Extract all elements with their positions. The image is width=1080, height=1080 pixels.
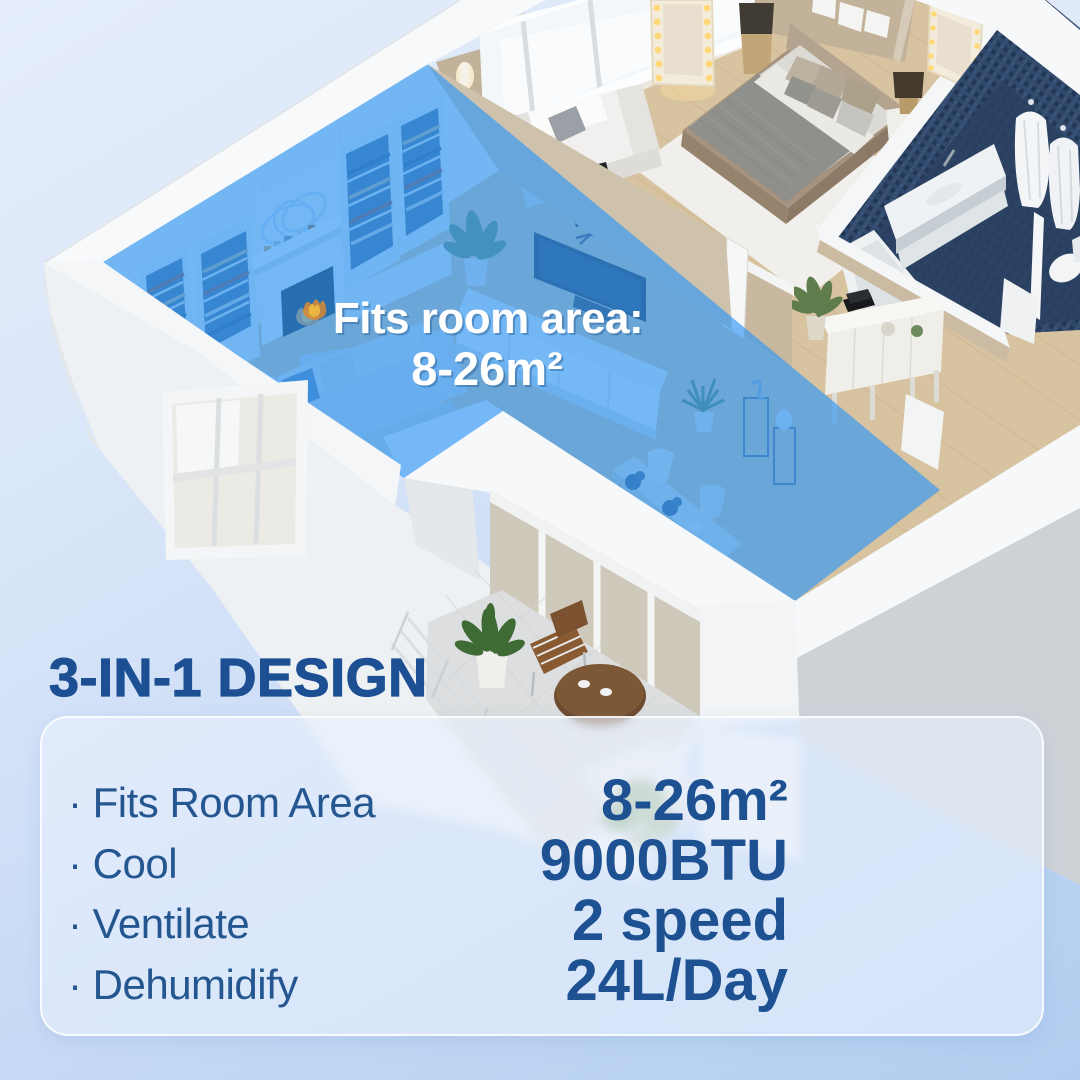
- svg-text:Fits room area:: Fits room area:: [333, 294, 643, 343]
- svg-text:8-26m²: 8-26m²: [411, 342, 563, 395]
